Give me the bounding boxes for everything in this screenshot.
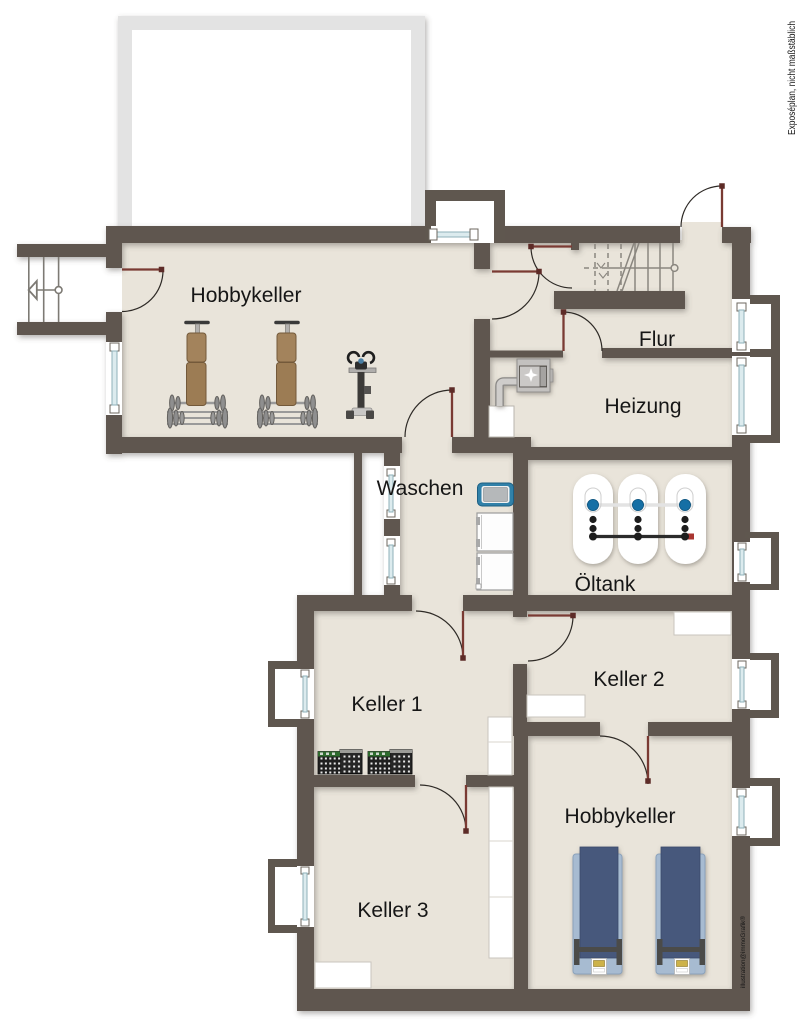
svg-text:Keller 3: Keller 3 [357, 899, 428, 922]
svg-text:illustration@immoGrafik®: illustration@immoGrafik® [739, 916, 747, 988]
svg-text:Exposéplan, nicht maßstäblich: Exposéplan, nicht maßstäblich [786, 21, 798, 135]
svg-text:Heizung: Heizung [604, 395, 681, 418]
svg-text:Hobbykeller: Hobbykeller [565, 805, 676, 828]
svg-text:Keller 1: Keller 1 [351, 693, 422, 716]
svg-text:Waschen: Waschen [377, 477, 464, 500]
svg-text:Hobbykeller: Hobbykeller [191, 284, 302, 307]
svg-text:Keller 2: Keller 2 [593, 668, 664, 691]
svg-text:Flur: Flur [639, 328, 675, 351]
svg-text:Öltank: Öltank [575, 573, 636, 596]
